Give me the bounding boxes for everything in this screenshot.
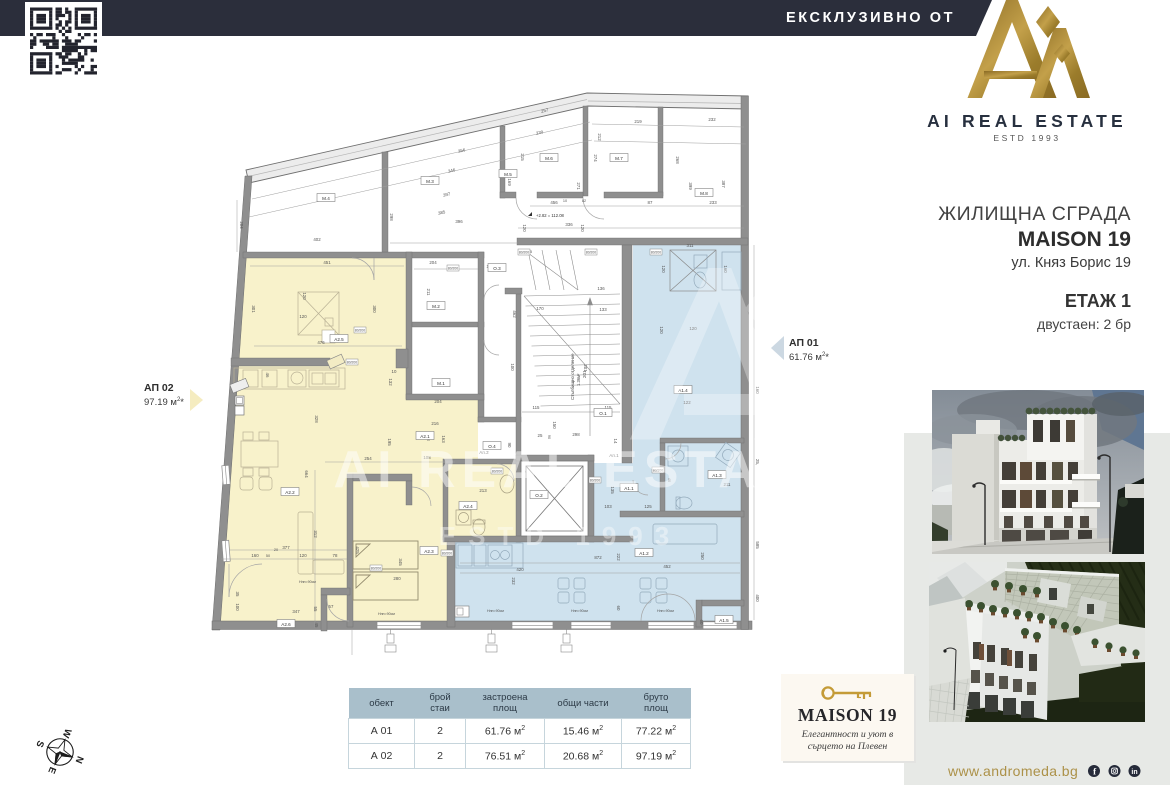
svg-text:М.3: М.3 <box>426 179 434 184</box>
svg-text:10: 10 <box>392 369 397 374</box>
svg-text:399: 399 <box>688 182 693 190</box>
svg-text:W: W <box>60 727 74 739</box>
svg-text:25: 25 <box>538 433 543 438</box>
svg-text:664: 664 <box>304 470 309 478</box>
svg-text:201: 201 <box>583 364 588 372</box>
svg-text:+2.82 = 112.08: +2.82 = 112.08 <box>536 213 565 218</box>
svg-text:402: 402 <box>313 237 321 242</box>
svg-text:451: 451 <box>323 260 331 265</box>
svg-text:80/200: 80/200 <box>442 552 452 556</box>
svg-text:312: 312 <box>313 530 318 538</box>
svg-text:А1.5: А1.5 <box>719 618 729 623</box>
svg-text:120: 120 <box>299 314 307 319</box>
svg-text:80/200: 80/200 <box>347 361 357 365</box>
svg-text:М.6: М.6 <box>545 156 553 161</box>
svg-text:82: 82 <box>582 199 586 203</box>
svg-text:274: 274 <box>593 154 598 162</box>
svg-text:Нпп=90см: Нпп=90см <box>378 612 395 616</box>
svg-text:120: 120 <box>299 553 307 558</box>
svg-text:ESTD 1993: ESTD 1993 <box>439 521 681 551</box>
svg-text:50: 50 <box>266 554 270 558</box>
svg-text:100: 100 <box>235 603 240 611</box>
svg-text:120: 120 <box>522 224 527 232</box>
svg-text:Нпп=90см: Нпп=90см <box>657 609 674 613</box>
svg-text:А2.4: А2.4 <box>463 504 473 509</box>
svg-text:55: 55 <box>313 607 318 612</box>
svg-text:А2.2: А2.2 <box>285 490 295 495</box>
svg-text:ESTD 1993: ESTD 1993 <box>993 133 1060 143</box>
svg-text:115: 115 <box>533 405 541 410</box>
svg-text:204: 204 <box>434 399 442 404</box>
svg-text:80/200: 80/200 <box>519 251 529 255</box>
svg-text:385: 385 <box>438 209 447 216</box>
svg-text:20: 20 <box>274 548 278 552</box>
svg-text:215: 215 <box>520 153 525 161</box>
svg-text:230: 230 <box>536 129 545 136</box>
svg-text:420: 420 <box>516 567 524 572</box>
svg-text:300: 300 <box>372 305 377 313</box>
svg-text:216: 216 <box>431 421 439 426</box>
svg-text:80/200: 80/200 <box>448 267 458 271</box>
svg-text:М.1: М.1 <box>437 381 445 386</box>
svg-text:170: 170 <box>536 306 544 311</box>
svg-text:78: 78 <box>333 553 338 558</box>
svg-text:60: 60 <box>699 620 704 625</box>
svg-text:10: 10 <box>563 199 567 203</box>
svg-text:268: 268 <box>675 156 680 164</box>
svg-text:AI REAL ESTATE: AI REAL ESTATE <box>334 441 837 499</box>
svg-text:М.4: М.4 <box>322 196 330 201</box>
svg-text:103: 103 <box>604 504 612 509</box>
svg-text:204: 204 <box>239 221 244 229</box>
svg-text:45: 45 <box>314 623 319 628</box>
svg-text:425: 425 <box>355 546 360 554</box>
svg-text:336: 336 <box>565 222 573 227</box>
svg-text:346: 346 <box>448 167 457 174</box>
svg-text:100: 100 <box>510 363 515 371</box>
svg-text:А2.1: А2.1 <box>420 434 430 439</box>
svg-text:476: 476 <box>317 340 325 345</box>
svg-text:298: 298 <box>389 213 394 221</box>
svg-text:452: 452 <box>663 564 671 569</box>
svg-text:AI REAL ESTATE: AI REAL ESTATE <box>927 111 1127 131</box>
svg-text:585: 585 <box>755 541 760 549</box>
svg-text:160: 160 <box>251 553 259 558</box>
svg-text:90: 90 <box>547 435 551 439</box>
svg-text:219: 219 <box>634 119 642 124</box>
svg-text:120: 120 <box>580 224 585 232</box>
svg-text:387: 387 <box>721 180 726 188</box>
svg-text:80/200: 80/200 <box>371 567 381 571</box>
svg-text:233: 233 <box>709 200 717 205</box>
svg-text:87: 87 <box>648 200 653 205</box>
svg-text:S: S <box>33 739 46 749</box>
svg-text:400: 400 <box>755 594 760 602</box>
svg-text:120: 120 <box>302 292 307 300</box>
svg-text:232: 232 <box>708 117 716 122</box>
svg-text:356: 356 <box>458 147 467 154</box>
svg-text:46: 46 <box>265 373 270 378</box>
svg-text:80/200: 80/200 <box>586 251 596 255</box>
svg-text:136: 136 <box>597 286 605 291</box>
svg-text:Нпп=90см: Нпп=90см <box>299 580 316 584</box>
svg-text:М.7: М.7 <box>615 156 623 161</box>
svg-text:204: 204 <box>429 260 437 265</box>
svg-text:Нпп=90см: Нпп=90см <box>487 609 504 613</box>
svg-text:222: 222 <box>616 553 621 561</box>
svg-text:298: 298 <box>572 432 580 437</box>
svg-text:377: 377 <box>282 545 290 550</box>
svg-text:А2.6: А2.6 <box>281 622 291 627</box>
svg-text:М.5: М.5 <box>504 172 512 177</box>
svg-text:132: 132 <box>388 378 393 386</box>
svg-text:328: 328 <box>314 415 319 423</box>
svg-text:347: 347 <box>292 609 300 614</box>
svg-text:57: 57 <box>329 604 334 609</box>
svg-text:397: 397 <box>443 191 452 198</box>
svg-text:462: 462 <box>512 310 517 318</box>
svg-text:456: 456 <box>550 200 558 205</box>
svg-text:1.36м²: 1.36м² <box>576 373 581 386</box>
svg-text:35: 35 <box>235 592 240 597</box>
svg-text:80/200: 80/200 <box>355 329 365 333</box>
svg-text:Стълбищно отделение: Стълбищно отделение <box>570 353 575 400</box>
svg-text:in: in <box>1131 769 1137 776</box>
svg-text:133: 133 <box>599 307 607 312</box>
svg-text:150: 150 <box>552 421 557 429</box>
svg-text:E: E <box>45 765 58 775</box>
svg-text:271: 271 <box>576 182 581 190</box>
svg-text:872: 872 <box>594 555 602 560</box>
svg-text:60: 60 <box>616 606 621 611</box>
svg-text:А2.3: А2.3 <box>424 549 434 554</box>
svg-text:120: 120 <box>659 326 664 334</box>
svg-text:232: 232 <box>511 577 516 585</box>
svg-text:311: 311 <box>687 243 695 248</box>
svg-text:А2.5: А2.5 <box>334 337 344 342</box>
svg-text:Нпп=90см: Нпп=90см <box>571 609 588 613</box>
svg-text:212: 212 <box>597 133 602 141</box>
svg-text:120: 120 <box>661 265 666 273</box>
svg-text:301: 301 <box>251 305 256 313</box>
svg-text:О.3: О.3 <box>493 266 501 271</box>
svg-text:М.2: М.2 <box>432 304 440 309</box>
svg-text:250: 250 <box>700 552 705 560</box>
svg-text:345: 345 <box>398 558 403 566</box>
svg-text:А1.2: А1.2 <box>639 551 649 556</box>
svg-text:125: 125 <box>644 504 652 509</box>
svg-text:169: 169 <box>507 178 512 186</box>
svg-text:396: 396 <box>455 219 463 224</box>
svg-text:211: 211 <box>426 289 431 297</box>
svg-text:280: 280 <box>393 576 401 581</box>
svg-text:N: N <box>73 754 86 765</box>
svg-text:80/200: 80/200 <box>651 251 661 255</box>
svg-text:О.1: О.1 <box>599 411 607 416</box>
svg-text:М.8: М.8 <box>700 191 708 196</box>
